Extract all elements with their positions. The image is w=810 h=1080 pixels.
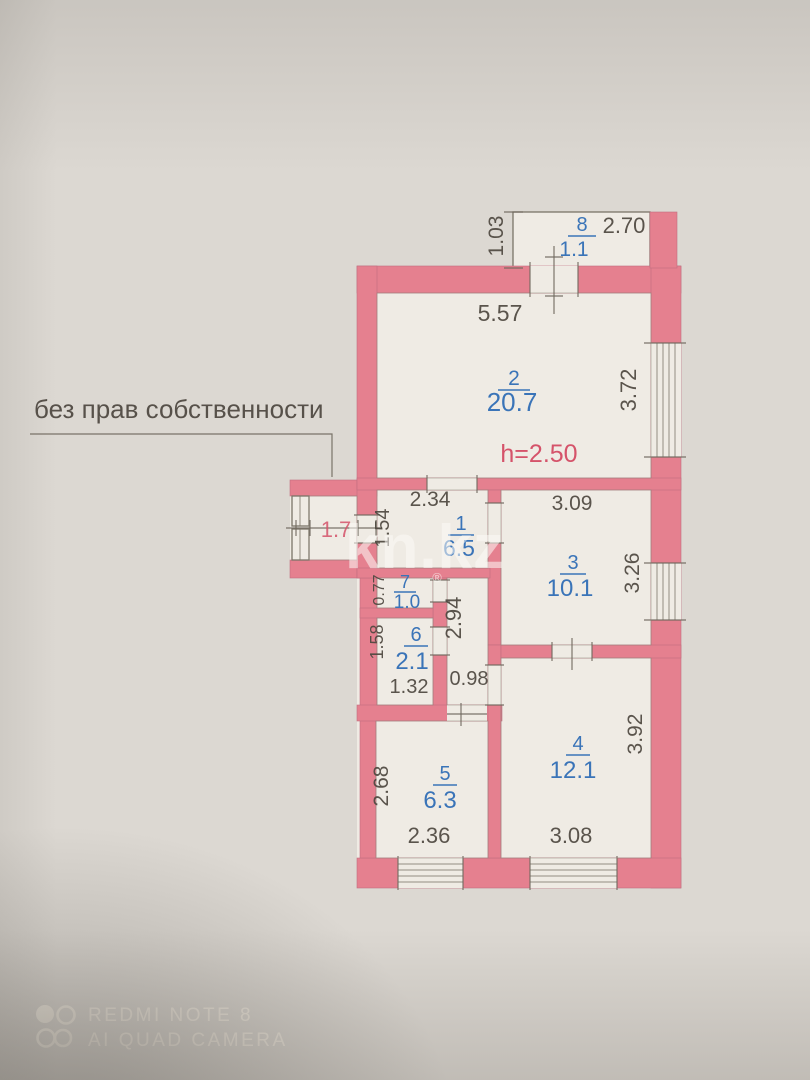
- camera-watermark: REDMI NOTE 8 AI QUAD CAMERA: [36, 1005, 288, 1051]
- dim-balcony8-width: 2.70: [603, 213, 646, 238]
- dim-room3-height: 3.26: [621, 553, 644, 594]
- dim-room6-height: 1.58: [367, 624, 387, 659]
- room5-area: 6.3: [423, 787, 456, 814]
- dim-room2-height: 3.72: [616, 369, 641, 412]
- dim-room6-width: 1.32: [390, 676, 429, 698]
- room6-area: 2.1: [395, 648, 428, 675]
- floor-plan-photo: 2.70 1.03 5.57 3.72 2.34 1.54 3.09 3.26 …: [0, 0, 810, 1080]
- room3-area: 10.1: [547, 575, 594, 602]
- floor-plan-drawing: 2.70 1.03 5.57 3.72 2.34 1.54 3.09 3.26 …: [0, 0, 810, 1080]
- quad-camera-icon: [36, 1005, 75, 1047]
- room4-area: 12.1: [550, 757, 597, 784]
- room4-number: 4: [572, 733, 583, 755]
- room8-number: 8: [576, 214, 587, 236]
- registered-mark-icon: ®: [432, 570, 442, 585]
- room6-number: 6: [410, 624, 421, 646]
- dim-room3-width: 3.09: [552, 492, 593, 515]
- dim-room5-height: 2.68: [370, 766, 393, 807]
- dim-corridor-height: 2.94: [441, 597, 466, 640]
- room2-area: 20.7: [487, 387, 538, 417]
- dim-room5-width: 2.36: [408, 823, 451, 848]
- dim-room4-width: 3.08: [550, 823, 593, 848]
- room7-area: 1.0: [394, 592, 420, 613]
- note-leader-line: [30, 434, 332, 477]
- room5-number: 5: [439, 763, 450, 785]
- dim-room2-width: 5.57: [478, 300, 523, 326]
- dim-balcony8-depth: 1.03: [485, 216, 508, 257]
- room3-number: 3: [567, 552, 578, 574]
- room8-area: 1.1: [559, 238, 588, 261]
- ceiling-height-label: h=2.50: [500, 440, 577, 468]
- camera-watermark-line1: REDMI NOTE 8: [88, 1005, 253, 1026]
- dim-corridor-width: 0.98: [450, 668, 489, 690]
- dim-room1-width: 2.34: [410, 488, 451, 511]
- ownership-note: без прав собственности: [34, 394, 324, 424]
- site-watermark: kn.kz ®: [345, 513, 505, 585]
- camera-watermark-line2: AI QUAD CAMERA: [88, 1030, 288, 1051]
- dim-room4-height: 3.92: [624, 714, 647, 755]
- site-watermark-text: kn.kz: [345, 513, 505, 582]
